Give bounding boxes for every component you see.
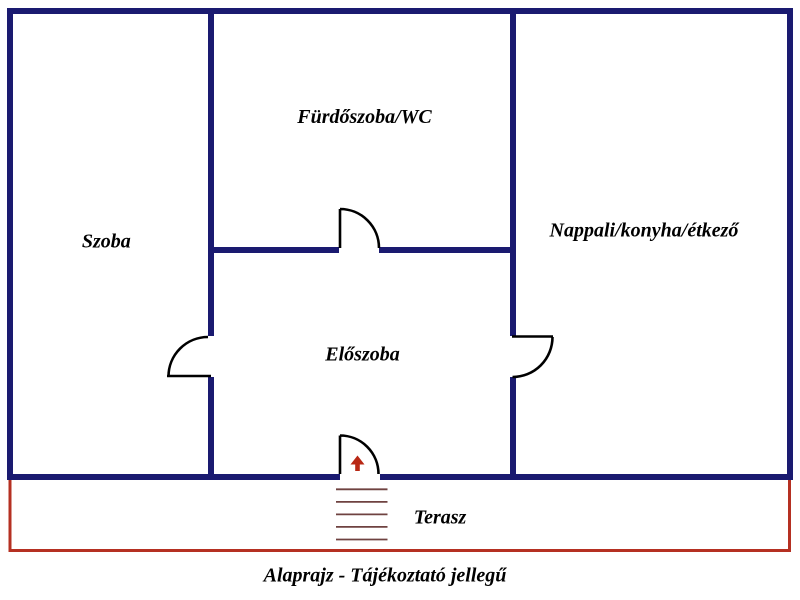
- svg-text:Alaprajz - Tájékoztató jellegű: Alaprajz - Tájékoztató jellegű: [262, 564, 508, 586]
- svg-text:Nappali/konyha/étkező: Nappali/konyha/étkező: [549, 220, 741, 242]
- svg-text:Fürdőszoba/WC: Fürdőszoba/WC: [296, 106, 432, 128]
- svg-text:Előszoba: Előszoba: [324, 344, 399, 366]
- svg-text:Terasz: Terasz: [414, 507, 467, 529]
- svg-text:Szoba: Szoba: [82, 231, 131, 253]
